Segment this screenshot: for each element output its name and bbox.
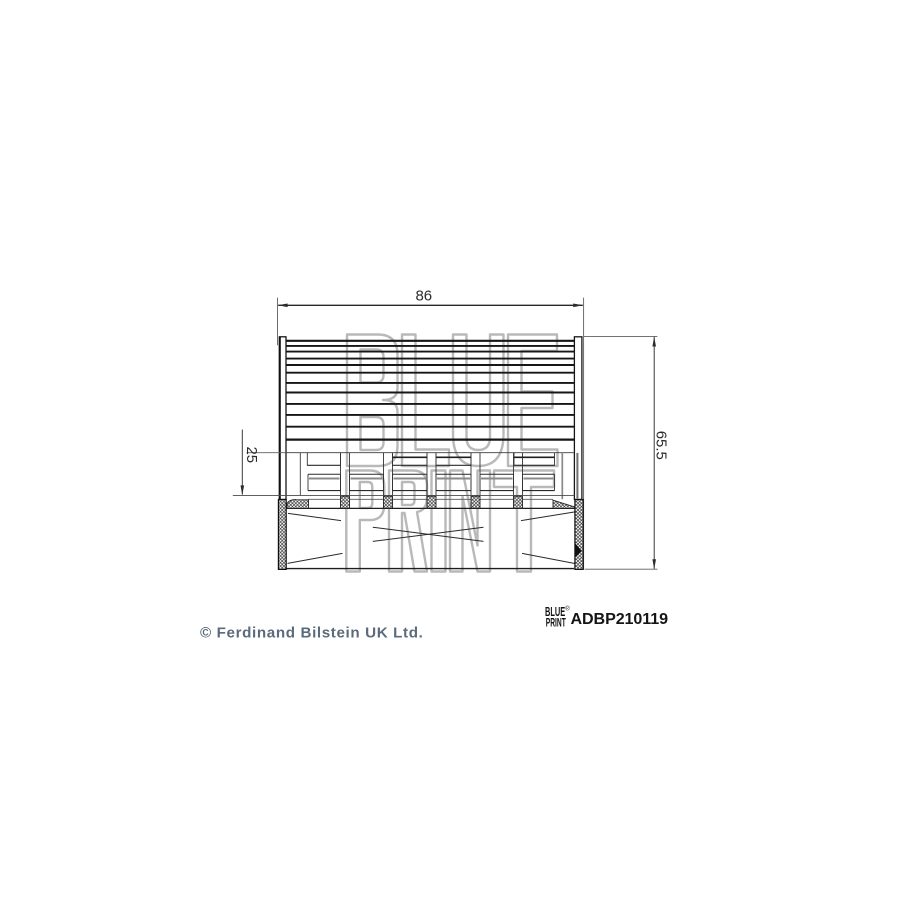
svg-text:25: 25	[243, 446, 260, 463]
svg-text:© Ferdinand Bilstein UK Ltd.: © Ferdinand Bilstein UK Ltd.	[200, 625, 423, 642]
svg-text:PRINT: PRINT	[546, 617, 566, 630]
svg-text:ADBP210119: ADBP210119	[571, 610, 669, 628]
svg-text:65.5: 65.5	[652, 431, 669, 460]
svg-text:86: 86	[415, 288, 432, 305]
